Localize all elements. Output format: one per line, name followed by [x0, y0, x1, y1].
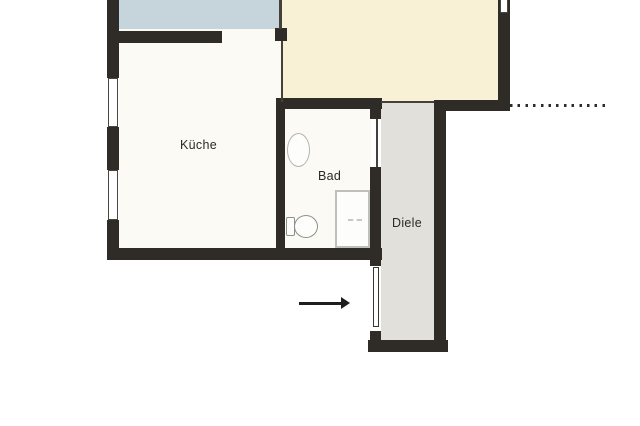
window-symbol-right — [500, 0, 508, 13]
opening-line-hall-top — [381, 101, 434, 103]
wall-left-middle — [107, 127, 119, 170]
sink-symbol — [287, 133, 310, 167]
shower-tray-symbol — [335, 190, 370, 248]
partition-line-top-rooms — [279, 0, 283, 29]
entrance-arrow-icon — [341, 297, 350, 309]
wall-hall-right — [434, 101, 446, 346]
wall-bath-top — [276, 98, 382, 109]
wall-kitchen-bath-divider — [276, 98, 285, 260]
wall-bath-right-lower — [370, 167, 381, 260]
hallway-label: Diele — [392, 216, 422, 230]
dotted-boundary-line — [510, 104, 609, 107]
room-top-left-floor — [119, 0, 279, 31]
wall-pillar-stub — [275, 28, 287, 41]
wall-top-right-room-right — [498, 0, 510, 111]
wall-top-room-bottom — [107, 31, 222, 43]
partition-line-kitchen-livingroom — [281, 41, 284, 102]
toilet-bowl-symbol — [294, 215, 318, 238]
room-top-right-floor — [281, 0, 498, 102]
window-symbol-left-1 — [108, 78, 118, 127]
window-symbol-left-2 — [108, 170, 118, 220]
bath-door-leaf-line — [376, 119, 378, 167]
wall-hall-left-upper — [370, 260, 381, 266]
wall-bath-right-upper — [370, 107, 381, 119]
kitchen-label: Küche — [180, 138, 217, 152]
bathroom-label: Bad — [318, 169, 341, 183]
shower-drain-mark — [348, 219, 362, 221]
entrance-arrow-shaft — [299, 302, 343, 305]
entrance-door-leaf — [373, 267, 379, 327]
wall-bottom-kitchen-bath — [107, 248, 382, 260]
floor-plan: Küche Bad Diele — [0, 0, 640, 426]
